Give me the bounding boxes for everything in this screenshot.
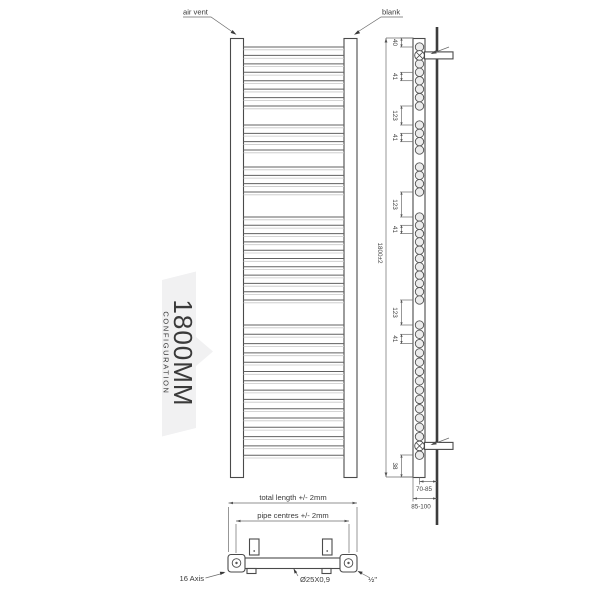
side-bar-circle: [415, 229, 423, 237]
side-bar-circle: [415, 254, 423, 262]
bottom-pipe-stub-left: [250, 539, 260, 555]
bottom-axis-dot-right: [347, 562, 349, 564]
dim-arrow: [400, 72, 402, 75]
side-dim-label: 41: [391, 226, 398, 234]
bottom-axis-dot-left: [235, 562, 237, 564]
drawing-canvas: 404112341123411234138 1800±2: [0, 0, 600, 600]
dim-arrow: [400, 341, 402, 344]
dim-arrow: [400, 122, 402, 125]
wall-offset-dimensions: 70-85 85-100: [411, 478, 437, 511]
side-bar-circle: [415, 405, 423, 413]
side-dim-label: 41: [391, 335, 398, 343]
dim-arrow: [400, 78, 402, 81]
side-bar-circle: [415, 395, 423, 403]
air-vent-callout: air vent: [183, 8, 237, 35]
side-bar-circle: [415, 77, 423, 85]
side-bar-circle: [415, 238, 423, 246]
tube-spec-label: Ø25X0,9: [300, 575, 330, 584]
side-bar-circle: [415, 432, 423, 440]
dim-arrow: [400, 192, 402, 195]
air-vent-label: air vent: [183, 8, 209, 17]
dim-arrow: [400, 231, 402, 234]
front-right-tube: [344, 39, 357, 478]
radiator-technical-drawing: 404112341123411234138 1800±2: [0, 0, 600, 600]
dim-arrow: [400, 139, 402, 142]
dim-arrow: [400, 474, 402, 477]
bottom-pipe-stub-right: [323, 539, 333, 555]
side-dim-label: 41: [391, 73, 398, 81]
overall-height-dimension: 1800±2: [376, 38, 414, 477]
side-bar-circle: [415, 358, 423, 366]
side-bar-circle: [415, 321, 423, 329]
side-dim-label: 41: [391, 134, 398, 142]
wall-offset-near-label: 70-85: [416, 486, 433, 493]
side-dim-label: 123: [391, 199, 398, 210]
connection-size-label: ½": [368, 575, 377, 584]
bottom-rail: [233, 558, 353, 569]
side-bar-circle: [415, 163, 423, 171]
air-vent-arrow: [231, 30, 237, 35]
side-dim-label: 123: [391, 110, 398, 121]
pipe-centres-label: pipe centres +/- 2mm: [257, 511, 329, 520]
banner-title: 1800MM: [168, 299, 198, 406]
side-bar-circle: [415, 339, 423, 347]
dim-arrow: [400, 322, 402, 325]
side-bar-circle: [415, 271, 423, 279]
side-bar-circle: [415, 377, 423, 385]
side-bar-circle: [415, 288, 423, 296]
dim-arrow: [400, 106, 402, 109]
side-bar-circle: [415, 386, 423, 394]
side-bar-circle: [415, 68, 423, 76]
bottom-foot-right: [322, 569, 331, 574]
side-bar-circle: [415, 221, 423, 229]
total-length-dimension: total length +/- 2mm: [229, 493, 358, 552]
dim-arrow: [400, 334, 402, 337]
tube-spec-arrow: [294, 569, 298, 574]
side-bar-circle: [415, 279, 423, 287]
axis-callout: 16 Axis: [180, 572, 226, 583]
axis-arrow: [220, 572, 226, 575]
wall-offset-far-label: 85-100: [411, 504, 431, 511]
side-bar-circle: [415, 423, 423, 431]
side-bar-circle: [415, 179, 423, 187]
side-bar-circle: [415, 451, 423, 459]
bottom-foot-left: [247, 569, 256, 574]
side-dim-label: 123: [391, 307, 398, 318]
side-bar-circle: [415, 146, 423, 154]
side-bar-circle: [415, 414, 423, 422]
overall-height-label: 1800±2: [376, 243, 383, 264]
stub-mark-right: [326, 550, 328, 552]
side-bar-circle: [415, 367, 423, 375]
side-bar-circle: [415, 213, 423, 221]
side-bar-circle: [415, 129, 423, 137]
side-bar-circle: [415, 330, 423, 338]
side-bar-circle: [415, 296, 423, 304]
side-bar-circle: [415, 263, 423, 271]
dim-arrow: [400, 225, 402, 228]
side-bar-circle: [415, 246, 423, 254]
dim-arrow: [400, 133, 402, 136]
side-dim-label: 38: [391, 462, 398, 470]
axis-label: 16 Axis: [180, 574, 205, 583]
stub-mark-left: [253, 550, 255, 552]
dim-arrow: [400, 214, 402, 217]
dim-arrow: [400, 455, 402, 458]
side-bar-circle: [415, 171, 423, 179]
connection-size-callout: ½": [358, 571, 378, 584]
blank-label: blank: [382, 8, 400, 17]
dim-arrow: [400, 44, 402, 47]
side-bar-circle: [415, 137, 423, 145]
side-bar-circle: [415, 121, 423, 129]
blank-callout: blank: [354, 8, 403, 35]
dim-arrow: [400, 38, 402, 41]
side-bar-circle: [415, 60, 423, 68]
side-bar-circle: [415, 102, 423, 110]
total-length-label: total length +/- 2mm: [259, 493, 326, 502]
dim-arrow: [400, 300, 402, 303]
side-bar-circle: [415, 43, 423, 51]
side-bar-circle: [415, 85, 423, 93]
banner-subtitle: CONFIGURATION: [162, 311, 171, 394]
side-bar-circle: [415, 349, 423, 357]
side-bar-circle: [415, 93, 423, 101]
front-left-tube: [231, 39, 244, 478]
side-dim-label: 40: [391, 39, 398, 47]
connection-size-arrow: [358, 571, 363, 575]
side-bar-circle: [415, 188, 423, 196]
